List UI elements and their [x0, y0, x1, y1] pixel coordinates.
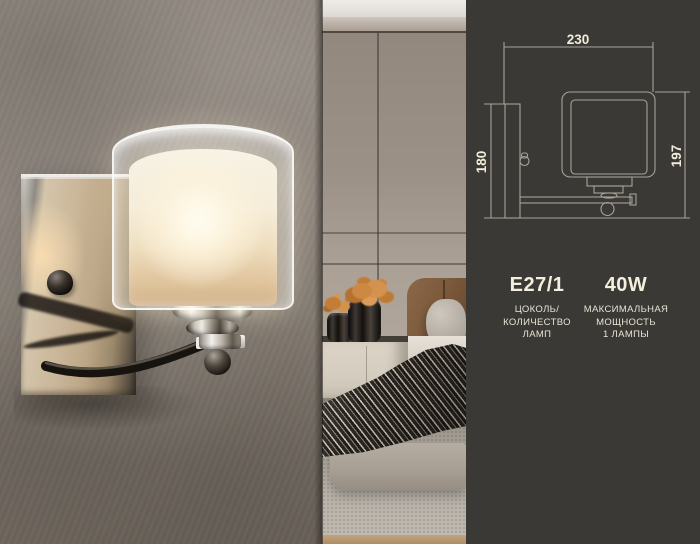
backplate-outline: [505, 104, 520, 218]
width-dimension-label: 230: [567, 32, 590, 47]
lamp-holder-collar: [199, 334, 241, 349]
holder-step: [587, 177, 632, 186]
screw-cap-outline: [522, 153, 528, 158]
caption-line: КОЛИЧЕСТВО: [492, 317, 582, 330]
shade-outer-outline: [562, 92, 655, 177]
product-card: 230 180 197 E27/1 ЦОКОЛЬ/ КОЛИЧЕСТВО ЛАМ…: [0, 0, 700, 544]
caption-line: 1 ЛАМПЫ: [576, 329, 676, 342]
drawing-lines: [484, 42, 690, 218]
caption-line: ЛАМП: [492, 329, 582, 342]
backplate-height-label: 180: [474, 151, 489, 174]
finial-outline: [601, 203, 614, 216]
shade-inner-outline: [571, 100, 647, 174]
spec-power-value: 40W: [576, 274, 676, 297]
dimension-drawing: 230 180 197: [466, 0, 700, 260]
total-height-label: 197: [669, 145, 684, 168]
spec-power: 40W МАКСИМАЛЬНАЯ МОЩНОСТЬ 1 ЛАМПЫ: [576, 274, 676, 342]
outer-glass: [112, 124, 294, 310]
glass-shade: [112, 124, 294, 310]
holder-step: [594, 186, 623, 193]
caption-line: МАКСИМАЛЬНАЯ: [576, 304, 676, 317]
caption-line: МОЩНОСТЬ: [576, 317, 676, 330]
spec-socket-caption: ЦОКОЛЬ/ КОЛИЧЕСТВО ЛАМП: [492, 304, 582, 342]
finial-ball: [204, 349, 231, 375]
spec-panel: 230 180 197 E27/1 ЦОКОЛЬ/ КОЛИЧЕСТВО ЛАМ…: [466, 0, 700, 544]
lifestyle-photo: [0, 0, 466, 544]
spec-socket: E27/1 ЦОКОЛЬ/ КОЛИЧЕСТВО ЛАМП: [492, 274, 582, 342]
spec-power-caption: МАКСИМАЛЬНАЯ МОЩНОСТЬ 1 ЛАМПЫ: [576, 304, 676, 342]
caption-line: ЦОКОЛЬ/: [492, 304, 582, 317]
spec-socket-value: E27/1: [492, 274, 582, 297]
